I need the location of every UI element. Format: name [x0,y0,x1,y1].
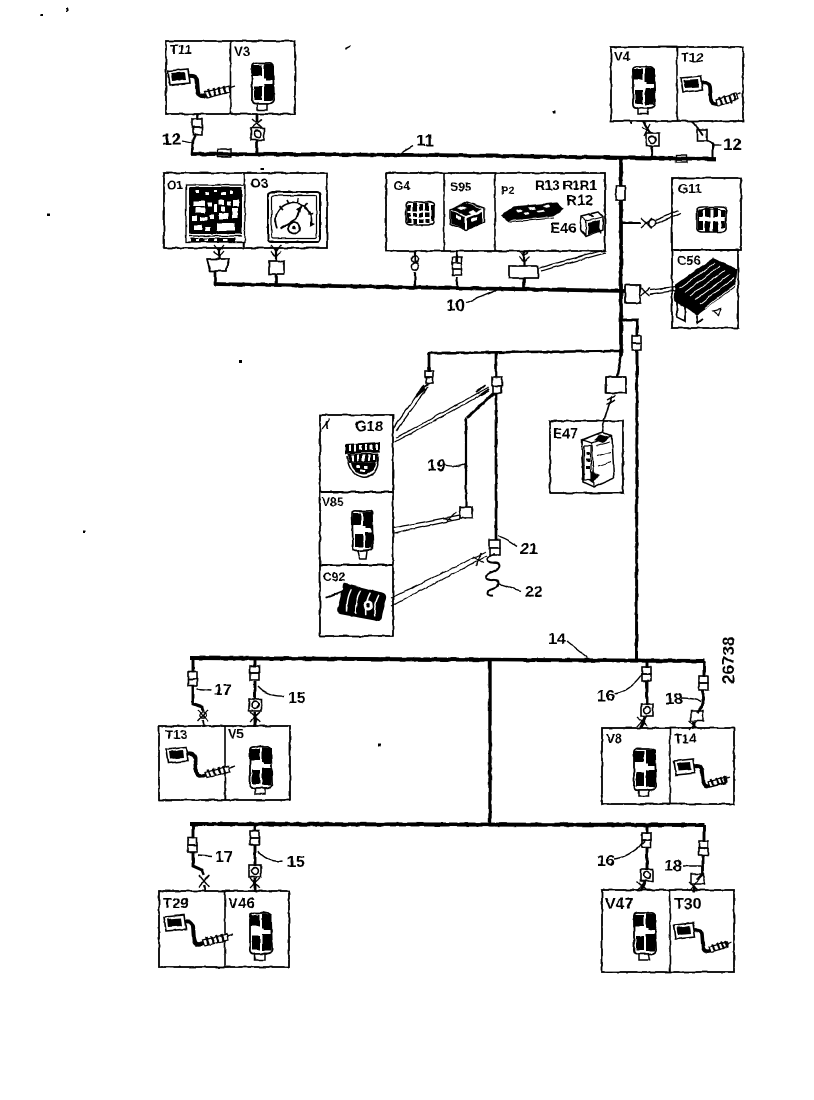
svg-text:22: 22 [525,584,543,601]
svg-text:26738: 26738 [719,637,738,684]
svg-text:10: 10 [446,296,465,315]
svg-text:V8: V8 [606,731,622,746]
svg-text:V5: V5 [228,726,244,741]
svg-text:T29: T29 [163,895,189,912]
svg-text:O1: O1 [167,178,183,192]
svg-text:O3: O3 [250,175,269,191]
svg-text:E47: E47 [553,425,578,441]
svg-text:15: 15 [287,854,305,871]
svg-text:P2: P2 [501,185,514,197]
svg-text:R13 R1R1: R13 R1R1 [535,177,597,193]
svg-text:V46: V46 [228,895,255,912]
svg-text:16: 16 [597,853,615,870]
svg-text:14: 14 [548,631,566,648]
svg-text:17: 17 [215,849,233,866]
svg-text:C92: C92 [323,570,345,584]
svg-text:V4: V4 [614,49,631,64]
svg-text:16: 16 [597,688,615,705]
svg-text:G18: G18 [355,418,383,435]
svg-text:V3: V3 [234,44,250,59]
svg-text:11: 11 [416,131,434,150]
svg-text:T14: T14 [674,731,697,746]
svg-text:E46: E46 [550,220,577,237]
svg-text:T12: T12 [681,50,703,65]
svg-text:T13: T13 [165,727,187,742]
svg-text:19: 19 [427,456,446,475]
svg-text:G4: G4 [394,179,410,193]
svg-text:V85: V85 [322,495,344,509]
svg-text:21: 21 [520,541,538,558]
svg-text:T30: T30 [674,896,702,913]
svg-text:R12: R12 [566,192,594,209]
svg-text:12: 12 [723,135,742,154]
svg-text:C56: C56 [677,253,701,268]
svg-text:V47: V47 [605,896,634,913]
svg-text:17: 17 [214,682,232,699]
svg-text:S95: S95 [450,180,472,194]
svg-text:T11: T11 [170,42,192,57]
svg-text:G11: G11 [678,181,702,196]
svg-text:12: 12 [162,130,181,149]
svg-text:18: 18 [665,691,683,708]
svg-text:15: 15 [288,690,306,707]
svg-text:18: 18 [664,858,682,875]
